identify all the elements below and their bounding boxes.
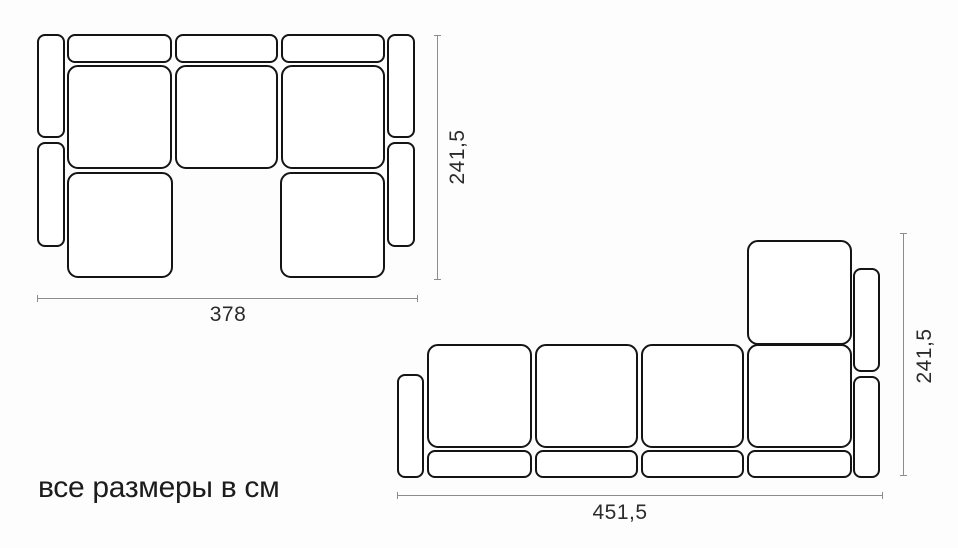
sofa-u-shaped-back-cushion-2 <box>175 34 278 63</box>
sofa-l-shaped-armrest-left <box>397 374 424 478</box>
sofa1-width-dimension-label: 378 <box>210 303 247 327</box>
sofa2-width-dimension-line <box>397 495 883 496</box>
sofa-l-shaped-seat-1 <box>427 344 532 448</box>
sofa-u-shaped-armrest-right-bottom <box>387 142 415 247</box>
sofa1-width-dimension-line <box>37 298 418 299</box>
sofa1-height-dimension-line <box>437 35 438 280</box>
blueprint-canvas: 378 241,5 451,5 241,5 все размеры в см <box>0 0 958 548</box>
sofa2-height-dimension-label: 241,5 <box>913 328 937 383</box>
sofa-u-shaped-back-cushion-3 <box>281 34 385 63</box>
sofa-u-shaped-armrest-right-top <box>387 34 415 138</box>
sofa-l-shaped-back-cushion-4 <box>747 450 852 478</box>
sofa1-height-dimension-label: 241,5 <box>446 129 470 184</box>
sofa-l-shaped-back-cushion-3 <box>641 450 744 478</box>
sofa-l-shaped-seat-3 <box>641 344 744 448</box>
sofa-u-shaped-seat-1 <box>67 65 172 169</box>
sofa-l-shaped-chaise <box>747 240 852 345</box>
sofa-l-shaped-back-cushion-2 <box>535 450 638 478</box>
sofa-u-shaped-armrest-left-top <box>37 34 65 138</box>
sofa2-width-dimension-label: 451,5 <box>592 501 647 525</box>
sofa-u-shaped-back-cushion-1 <box>67 34 172 63</box>
sofa-u-shaped-chaise-right <box>280 172 385 278</box>
sofa-u-shaped-chaise-left <box>67 172 173 278</box>
sofa-u-shaped-seat-3 <box>281 65 385 169</box>
sofa-l-shaped-armrest-right-bottom <box>853 376 880 478</box>
sofa2-height-dimension-line <box>903 233 904 476</box>
sofa-u-shaped-armrest-left-bottom <box>37 142 65 247</box>
units-caption: все размеры в см <box>38 471 279 505</box>
sofa-l-shaped-seat-4-corner <box>747 344 852 448</box>
sofa-l-shaped-back-cushion-1 <box>427 450 532 478</box>
sofa-l-shaped-armrest-right-top <box>853 268 880 372</box>
sofa-u-shaped-seat-2 <box>175 65 278 169</box>
sofa-l-shaped-seat-2 <box>535 344 638 448</box>
